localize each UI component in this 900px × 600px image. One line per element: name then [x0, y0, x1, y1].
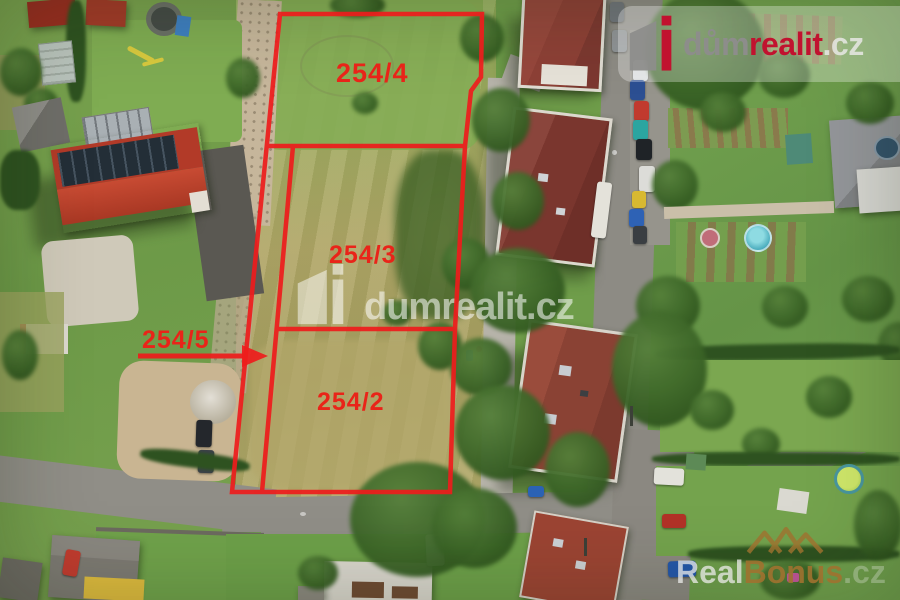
- realbonus-logo: RealBonus.cz: [676, 522, 896, 588]
- parcel-arrow-head: [242, 345, 268, 367]
- parcel-label-254-5: 254/5: [142, 326, 210, 355]
- parcel-outline-overlay: [0, 0, 900, 600]
- parcel-divider-left: [262, 146, 293, 492]
- aerial-photo-listing: 254/4 254/3 254/2 254/5 dumrealit.cz dům…: [0, 0, 900, 600]
- dumrealit-logo: důmrealit.cz: [618, 6, 900, 82]
- logo-word-bonus-cz: .cz: [843, 554, 886, 590]
- realbonus-roofs-icon: [740, 522, 832, 556]
- logo-word-real: Real: [676, 554, 744, 590]
- logo-word-cz: .cz: [823, 26, 864, 62]
- parcel-label-254-2: 254/2: [317, 388, 385, 417]
- dumrealit-building-icon: [628, 15, 674, 73]
- logo-word-realit: realit: [749, 26, 822, 62]
- logo-wordmark: důmrealit.cz: [683, 28, 864, 60]
- logo-wordmark: RealBonus.cz: [676, 554, 886, 590]
- logo-word-bonus: Bonus: [744, 554, 844, 590]
- logo-word-dum: dům: [683, 26, 749, 62]
- parcel-label-254-4: 254/4: [336, 58, 409, 89]
- parcel-label-254-3: 254/3: [329, 241, 397, 270]
